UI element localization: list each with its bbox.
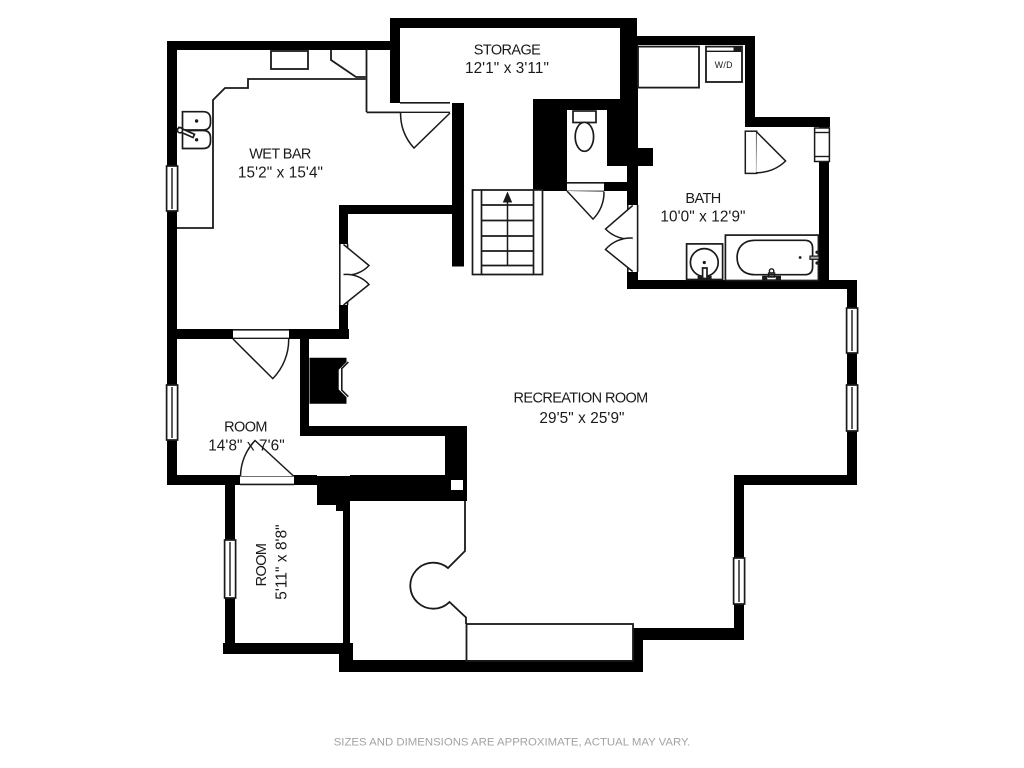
svg-text:STORAGE: STORAGE bbox=[474, 43, 541, 59]
svg-text:BATH: BATH bbox=[685, 191, 720, 207]
svg-text:SIZES AND DIMENSIONS ARE APPRO: SIZES AND DIMENSIONS ARE APPROXIMATE, AC… bbox=[334, 737, 691, 749]
svg-text:12'1" x 3'11": 12'1" x 3'11" bbox=[465, 60, 549, 77]
svg-text:29'5" x 25'9": 29'5" x 25'9" bbox=[539, 410, 624, 427]
svg-text:14'8" x 7'6": 14'8" x 7'6" bbox=[208, 438, 285, 455]
svg-text:ROOM: ROOM bbox=[224, 420, 267, 436]
svg-text:W/D: W/D bbox=[715, 60, 733, 70]
svg-text:RECREATION ROOM: RECREATION ROOM bbox=[514, 391, 648, 407]
svg-text:10'0" x 12'9": 10'0" x 12'9" bbox=[660, 209, 745, 226]
svg-text:15'2" x 15'4": 15'2" x 15'4" bbox=[238, 165, 323, 182]
svg-text:5'11" x 8'8": 5'11" x 8'8" bbox=[274, 524, 291, 599]
svg-text:WET BAR: WET BAR bbox=[249, 147, 311, 163]
svg-text:ROOM: ROOM bbox=[254, 544, 270, 587]
